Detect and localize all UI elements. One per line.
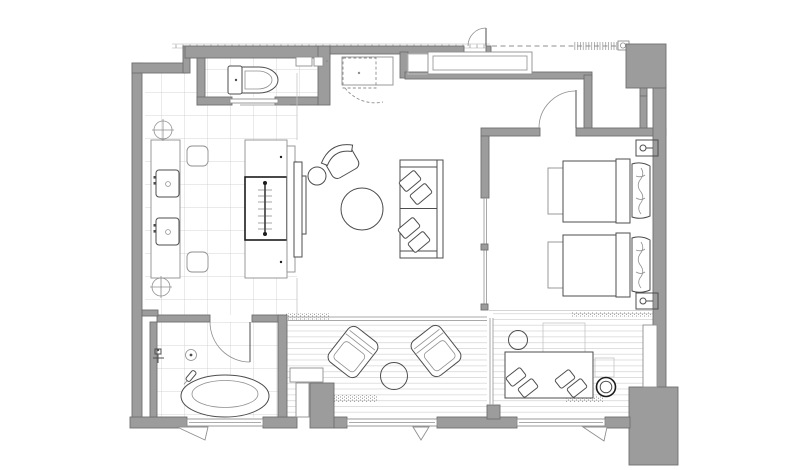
wall-nub-1 bbox=[640, 88, 647, 96]
foyer-niche bbox=[408, 54, 428, 74]
sink-2 bbox=[154, 218, 180, 245]
wall-top-left bbox=[132, 63, 187, 73]
wardrobe-dot-2 bbox=[280, 261, 282, 263]
sink-1 bbox=[154, 170, 180, 197]
toilet bbox=[228, 66, 278, 94]
bed-bench-2 bbox=[548, 242, 563, 288]
wall-toilet-bottom-left bbox=[197, 97, 232, 105]
living-room bbox=[308, 139, 443, 258]
bed-1-pillow bbox=[632, 163, 650, 218]
wall-bedroom-top-left bbox=[481, 128, 540, 136]
wall-toilet-right bbox=[318, 46, 330, 105]
wall-pier-stem bbox=[487, 405, 500, 419]
wall-dressing-bottom bbox=[142, 310, 158, 316]
wall-bottom-2 bbox=[263, 417, 297, 428]
wall-bedroom-niche bbox=[640, 96, 647, 128]
wall-top-right-mass bbox=[626, 44, 666, 88]
round-stool bbox=[597, 378, 616, 397]
bed-2-mattress bbox=[563, 235, 618, 296]
twin-bed-1 bbox=[548, 159, 650, 223]
oval-bathtub bbox=[181, 375, 269, 417]
tv-screen bbox=[302, 176, 306, 234]
tv-panel bbox=[294, 162, 302, 257]
cabinet-center-dot bbox=[358, 72, 360, 74]
wall-bottom-4 bbox=[437, 417, 517, 428]
sofa bbox=[397, 160, 443, 258]
wall-bottom-right-mass bbox=[629, 387, 678, 465]
bedroom bbox=[548, 140, 658, 309]
coat-closet bbox=[428, 52, 532, 74]
wall-bottom-1 bbox=[130, 417, 187, 428]
entry-door bbox=[468, 28, 486, 46]
round-coffee-table bbox=[341, 188, 383, 230]
threshold-hatch-3 bbox=[572, 312, 652, 317]
wall-bath-top-left bbox=[157, 315, 210, 322]
wall-bath-right bbox=[278, 315, 287, 417]
wall-terrace-column bbox=[310, 383, 334, 428]
bed-bench-1 bbox=[548, 168, 563, 214]
bed-1-fold bbox=[616, 159, 630, 223]
door-swing-triangle-bedroom bbox=[583, 427, 607, 441]
wall-toilet-top bbox=[185, 46, 330, 58]
floor-plan-svg bbox=[0, 0, 800, 470]
glass-mullion-2 bbox=[481, 304, 488, 310]
foyer-counter bbox=[342, 57, 393, 85]
wall-bottom-5 bbox=[605, 417, 630, 428]
window-terrace bbox=[347, 419, 437, 440]
glass-mullion-1 bbox=[481, 244, 488, 250]
bed-2-fold bbox=[616, 233, 630, 297]
bed-1-mattress bbox=[563, 161, 618, 222]
vanity-counter bbox=[151, 140, 180, 278]
twin-bed-2 bbox=[548, 233, 650, 297]
window-bathroom bbox=[187, 419, 263, 426]
wall-partition-living-bedroom bbox=[481, 136, 489, 198]
side-table bbox=[308, 167, 326, 185]
bed-2-pillow bbox=[632, 237, 650, 292]
ottoman-1 bbox=[187, 146, 208, 166]
threshold-hatch-2 bbox=[331, 395, 377, 402]
wall-bottom-3 bbox=[334, 417, 347, 428]
wall-bath-left bbox=[150, 322, 157, 417]
wall-bench bbox=[643, 325, 657, 387]
floor-plan bbox=[0, 0, 800, 470]
casement-triangle-terrace bbox=[413, 427, 429, 440]
wall-toilet-bottom-right bbox=[275, 97, 318, 105]
window-bedroom bbox=[517, 419, 607, 441]
cistern-shelf bbox=[296, 57, 328, 66]
entry-swing-triangle bbox=[177, 427, 208, 440]
wall-left-outer bbox=[132, 63, 142, 425]
ottoman-2 bbox=[187, 252, 208, 272]
wall-bedroom-top-right bbox=[576, 128, 666, 136]
wall-corridor-right bbox=[584, 75, 592, 131]
bedroom-door bbox=[539, 90, 576, 128]
tick-hatch-band bbox=[573, 42, 619, 50]
armchair bbox=[318, 139, 364, 182]
wardrobe-dot-1 bbox=[280, 156, 282, 158]
dashed-swing-arc bbox=[345, 88, 383, 103]
